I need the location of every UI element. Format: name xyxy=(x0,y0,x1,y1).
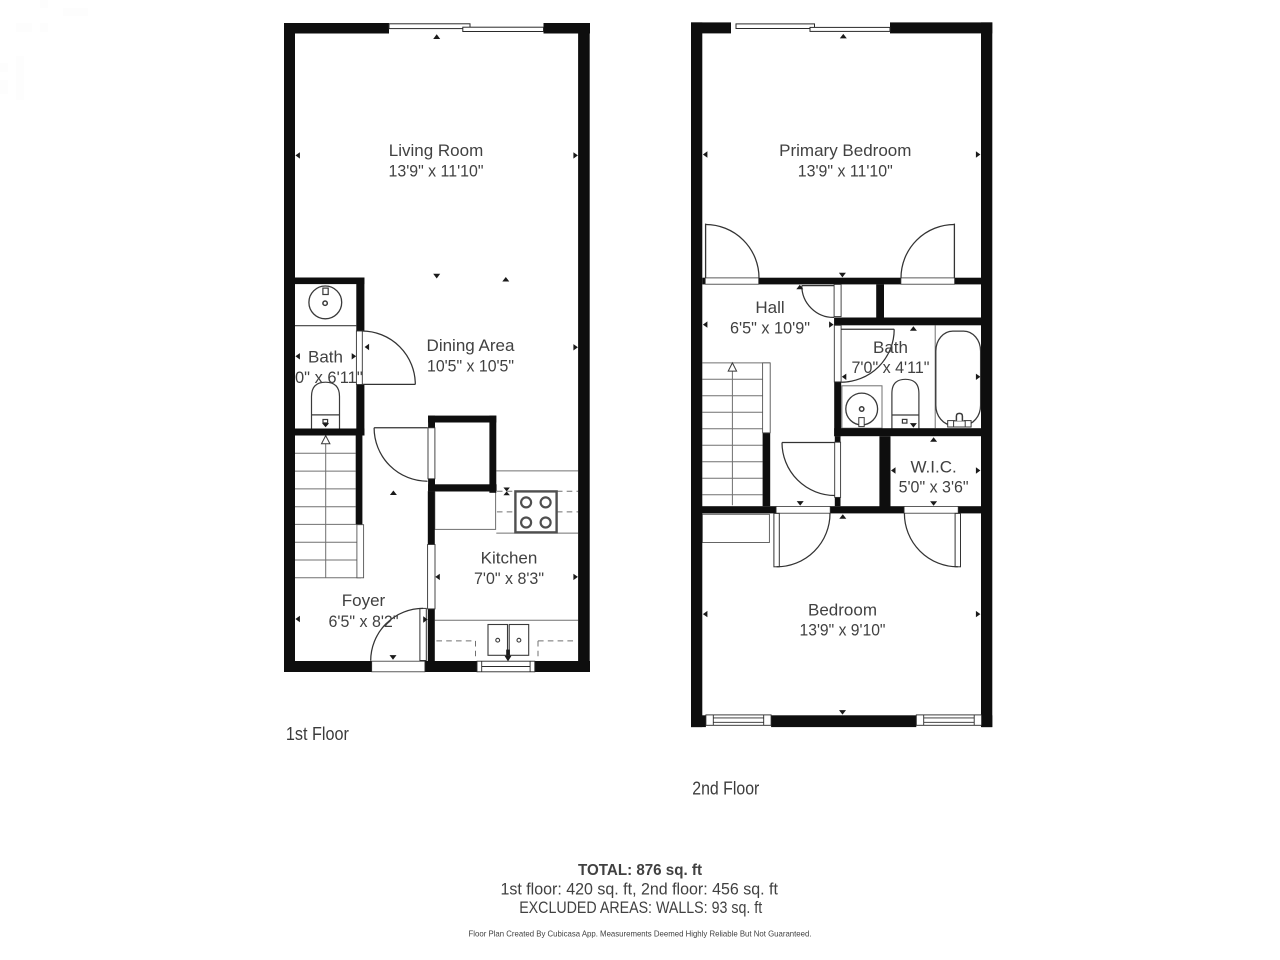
svg-text:13'9" x 11'10": 13'9" x 11'10" xyxy=(798,162,893,181)
svg-text:5'0" x 3'6": 5'0" x 3'6" xyxy=(899,478,969,497)
svg-text:Hall: Hall xyxy=(755,298,784,317)
svg-text:Kitchen: Kitchen xyxy=(481,549,538,568)
svg-text:Primary Bedroom: Primary Bedroom xyxy=(779,141,911,160)
svg-text:TOTAL: 876 sq. ft: TOTAL: 876 sq. ft xyxy=(578,862,703,879)
svg-text:10'5" x 10'5": 10'5" x 10'5" xyxy=(427,357,514,376)
svg-text:1st floor: 420 sq. ft, 2nd flo: 1st floor: 420 sq. ft, 2nd floor: 456 sq… xyxy=(500,880,778,899)
svg-text:7'0" x 4'11": 7'0" x 4'11" xyxy=(852,358,930,377)
svg-text:7'0" x 8'3": 7'0" x 8'3" xyxy=(474,569,544,588)
svg-text:EXCLUDED AREAS: WALLS: 93 sq.: EXCLUDED AREAS: WALLS: 93 sq. ft xyxy=(519,898,762,917)
svg-text:Dining Area: Dining Area xyxy=(427,336,515,355)
svg-text:Bath: Bath xyxy=(873,338,908,357)
svg-text:W.I.C.: W.I.C. xyxy=(910,458,956,477)
svg-text:Foyer: Foyer xyxy=(342,591,386,610)
svg-text:Floor Plan Created By Cubicasa: Floor Plan Created By Cubicasa App. Meas… xyxy=(469,929,812,939)
svg-text:2nd Floor: 2nd Floor xyxy=(692,779,759,799)
svg-text:13'9" x 11'10": 13'9" x 11'10" xyxy=(389,162,484,181)
svg-text:Living Room: Living Room xyxy=(389,141,484,160)
svg-text:6'5" x 10'9": 6'5" x 10'9" xyxy=(730,319,810,338)
svg-text:Bedroom: Bedroom xyxy=(808,600,877,619)
svg-text:Bath: Bath xyxy=(308,348,343,367)
svg-text:6'5" x 8'2": 6'5" x 8'2" xyxy=(329,612,399,631)
svg-text:1st Floor: 1st Floor xyxy=(286,724,349,744)
svg-text:13'9" x 9'10": 13'9" x 9'10" xyxy=(800,621,886,640)
